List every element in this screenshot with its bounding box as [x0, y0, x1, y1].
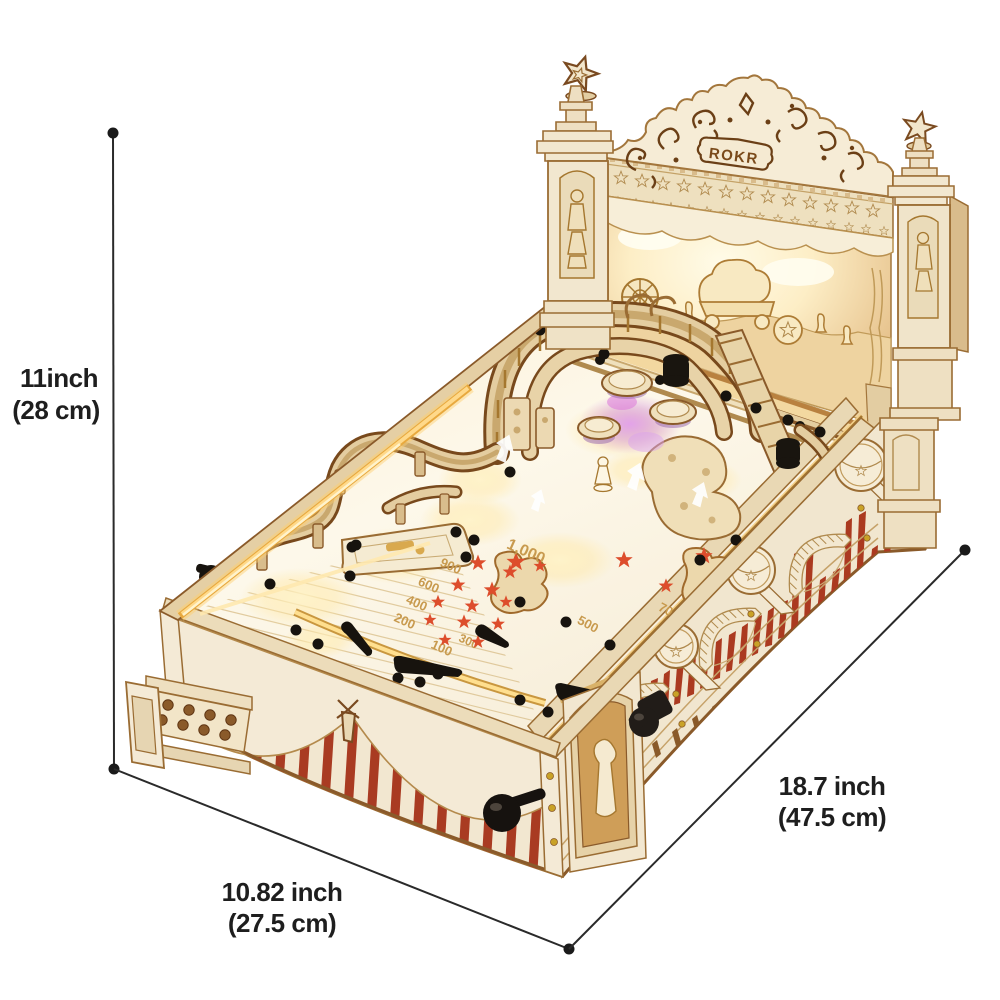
svg-text:18.7 inch: 18.7 inch: [779, 771, 886, 801]
svg-text:(47.5 cm): (47.5 cm): [778, 802, 886, 832]
svg-text:(27.5 cm): (27.5 cm): [228, 908, 336, 938]
svg-text:(28 cm): (28 cm): [12, 395, 100, 425]
svg-text:11inch: 11inch: [20, 363, 98, 393]
svg-text:10.82 inch: 10.82 inch: [222, 877, 343, 907]
